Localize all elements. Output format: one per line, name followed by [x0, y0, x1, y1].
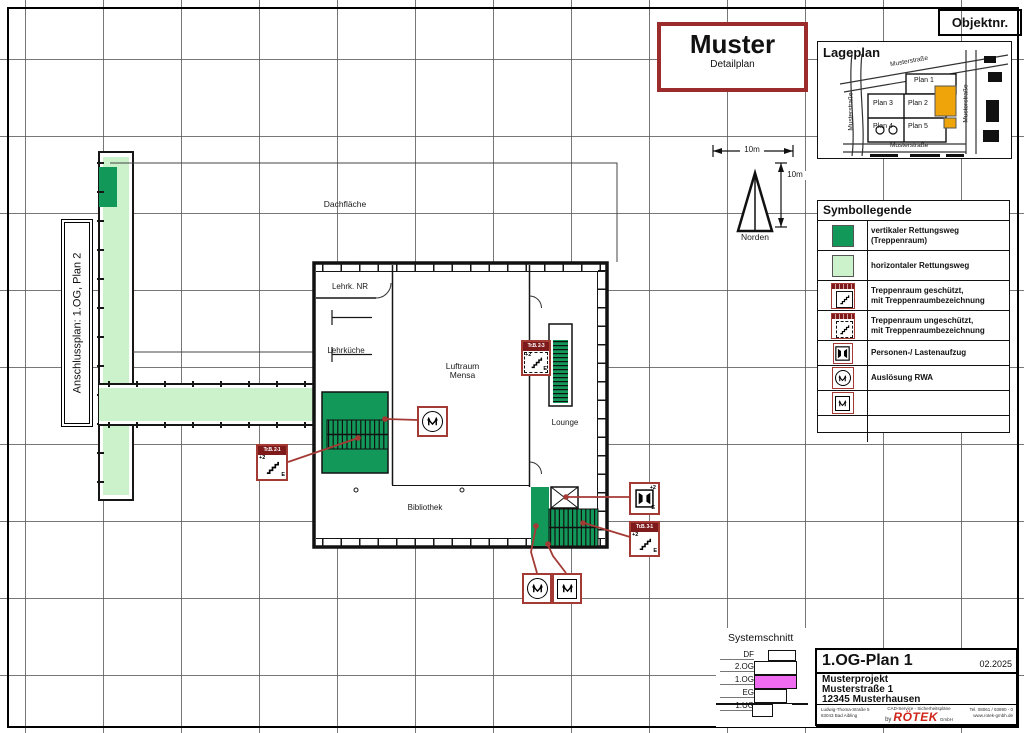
- brand-by: by: [885, 717, 891, 723]
- brand-logo: RÖTEK: [893, 711, 938, 723]
- legend-row-empty: [818, 416, 1009, 442]
- street-label-right: Musterstraße: [963, 84, 970, 122]
- stair-icon: [638, 537, 652, 551]
- room-label-luftraum-mensa: Luftraum Mensa: [425, 362, 500, 381]
- legend-label: [868, 391, 1009, 415]
- stair-icon: [265, 460, 280, 475]
- page-subtitle: Detailplan: [661, 59, 804, 70]
- lageplan-plan4: Plan 4: [873, 123, 893, 130]
- detail-title-box: Muster Detailplan: [657, 22, 808, 92]
- legend-label: horizontaler Rettungsweg: [868, 251, 1009, 280]
- legend-row: Auslösung RWA: [818, 366, 1009, 391]
- section-eg-divider: [786, 689, 797, 703]
- section-1og-highlight: [754, 675, 797, 689]
- company-web: www.rotek-gmbh.de: [961, 713, 1013, 719]
- legend-row: [818, 391, 1009, 416]
- anschlussplan-label: Anschlussplan: 1.OG, Plan 2: [71, 253, 83, 394]
- legend-row: Treppenraum ungeschützt, mit Treppenraum…: [818, 311, 1009, 341]
- elevator-icon: [833, 343, 853, 364]
- room-label-lounge: Lounge: [540, 419, 590, 428]
- section-1ug-divider: [772, 704, 792, 717]
- objektnr-label: Objektnr.: [952, 15, 1008, 30]
- lageplan-plan2: Plan 2: [908, 100, 928, 107]
- stair-tag-west: Tr.B. 2-1: [258, 446, 286, 455]
- room-label-bibliothek: Bibliothek: [394, 504, 456, 513]
- legend-label: Personen-/ Lastenaufzug: [868, 341, 1009, 365]
- street-label-left: Musterstraße: [848, 92, 855, 130]
- scale-horizontal-label: 10m: [740, 146, 764, 155]
- horizontal-rescue-swatch: [832, 255, 854, 277]
- section-df: [768, 650, 796, 661]
- brand-suffix: GmbH: [940, 717, 953, 722]
- room-label-lehrk-nr: Lehrk. NR: [320, 283, 380, 292]
- systemschnitt-title: Systemschnitt: [728, 632, 793, 644]
- plan-name: 1.OG-Plan 1: [822, 652, 913, 670]
- rwa-trigger-callout-mensa: [417, 406, 448, 437]
- scale-vertical-label: 10m: [784, 171, 806, 180]
- legend-label: Treppenraum ungeschützt, mit Treppenraum…: [868, 311, 1009, 340]
- stair-callout-east: Tr.B. 3-1 +2 E: [629, 521, 660, 557]
- level-label-eg: EG: [720, 688, 754, 698]
- level-label-1og: 1.OG: [720, 675, 754, 685]
- objektnr-box: Objektnr.: [938, 9, 1022, 36]
- elevator-icon: [635, 489, 654, 508]
- legend-title: Symbollegende: [818, 201, 1009, 221]
- level-label-2og: 2.OG: [720, 662, 754, 672]
- rwa-trigger-icon: [832, 367, 854, 389]
- stair-tag-east: Tr.B. 3-1: [631, 523, 658, 532]
- anschlussplan-box: Anschlussplan: 1.OG, Plan 2: [61, 219, 93, 427]
- vertical-rescue-swatch: [832, 225, 854, 247]
- titleblock: 1.OG-Plan 1 02.2025 Musterprojekt Muster…: [815, 648, 1018, 726]
- elevator-callout: +2 E: [629, 482, 660, 515]
- lageplan-plan5: Plan 5: [908, 123, 928, 130]
- company-city: 83043 Bad Aibling: [821, 713, 877, 719]
- north-label: Norden: [735, 233, 775, 242]
- legend-row: vertikaler Rettungsweg (Treppenraum): [818, 221, 1009, 251]
- legend-label: Auslösung RWA: [868, 366, 1009, 390]
- room-label-lehrkueche: Lehrküche: [314, 347, 378, 356]
- legend-row: Personen-/ Lastenaufzug: [818, 341, 1009, 366]
- stair-callout-middle: Tr.B. 2-3 +2 E: [521, 340, 551, 376]
- stair-callout-west: Tr.B. 2-1 +2 E: [256, 444, 288, 481]
- plan-sheet: Dachfläche Lehrk. NR Lehrküche Luftraum …: [0, 0, 1024, 733]
- level-label-df: DF: [720, 650, 754, 660]
- plan-date: 02.2025: [979, 659, 1012, 669]
- legend-row: Treppenraum geschützt, mit Treppenraumbe…: [818, 281, 1009, 311]
- room-label-mensa: Mensa: [425, 371, 500, 380]
- legend-panel: Symbollegende vertikaler Rettungsweg (Tr…: [817, 200, 1010, 433]
- lageplan-panel: Lageplan Musterstraße Musterstraße Muste…: [817, 41, 1012, 159]
- legend-label: vertikaler Rettungsweg (Treppenraum): [868, 221, 1009, 250]
- stair-protected-icon: [831, 283, 855, 309]
- room-label-dachflaeche: Dachfläche: [300, 200, 390, 209]
- rwa-opening-callout-south: [552, 573, 582, 604]
- rwa-trigger-icon: [530, 581, 545, 596]
- rwa-trigger-callout-south: [522, 573, 552, 604]
- rwa-opening-icon: [832, 392, 854, 414]
- page-title: Muster: [661, 30, 804, 59]
- lageplan-title: Lageplan: [823, 45, 880, 60]
- street-label-bottom: Musterstraße: [890, 142, 928, 149]
- lageplan-plan1: Plan 1: [914, 77, 934, 84]
- rwa-trigger-icon: [425, 414, 440, 429]
- stair-icon: [530, 356, 543, 369]
- stair-tag-middle: Tr.B. 2-3: [523, 342, 549, 351]
- legend-row: horizontaler Rettungsweg: [818, 251, 1009, 281]
- project-city: 12345 Musterhausen: [822, 695, 1016, 705]
- systemschnitt-panel: Systemschnitt DF 2.OG 1.OG EG 1.UG: [716, 628, 816, 727]
- rwa-opening-icon: [560, 581, 575, 596]
- section-2og: [754, 661, 797, 675]
- stair-unprotected-icon: [831, 313, 855, 339]
- legend-label: Treppenraum geschützt, mit Treppenraumbe…: [868, 281, 1009, 310]
- lageplan-plan3: Plan 3: [873, 100, 893, 107]
